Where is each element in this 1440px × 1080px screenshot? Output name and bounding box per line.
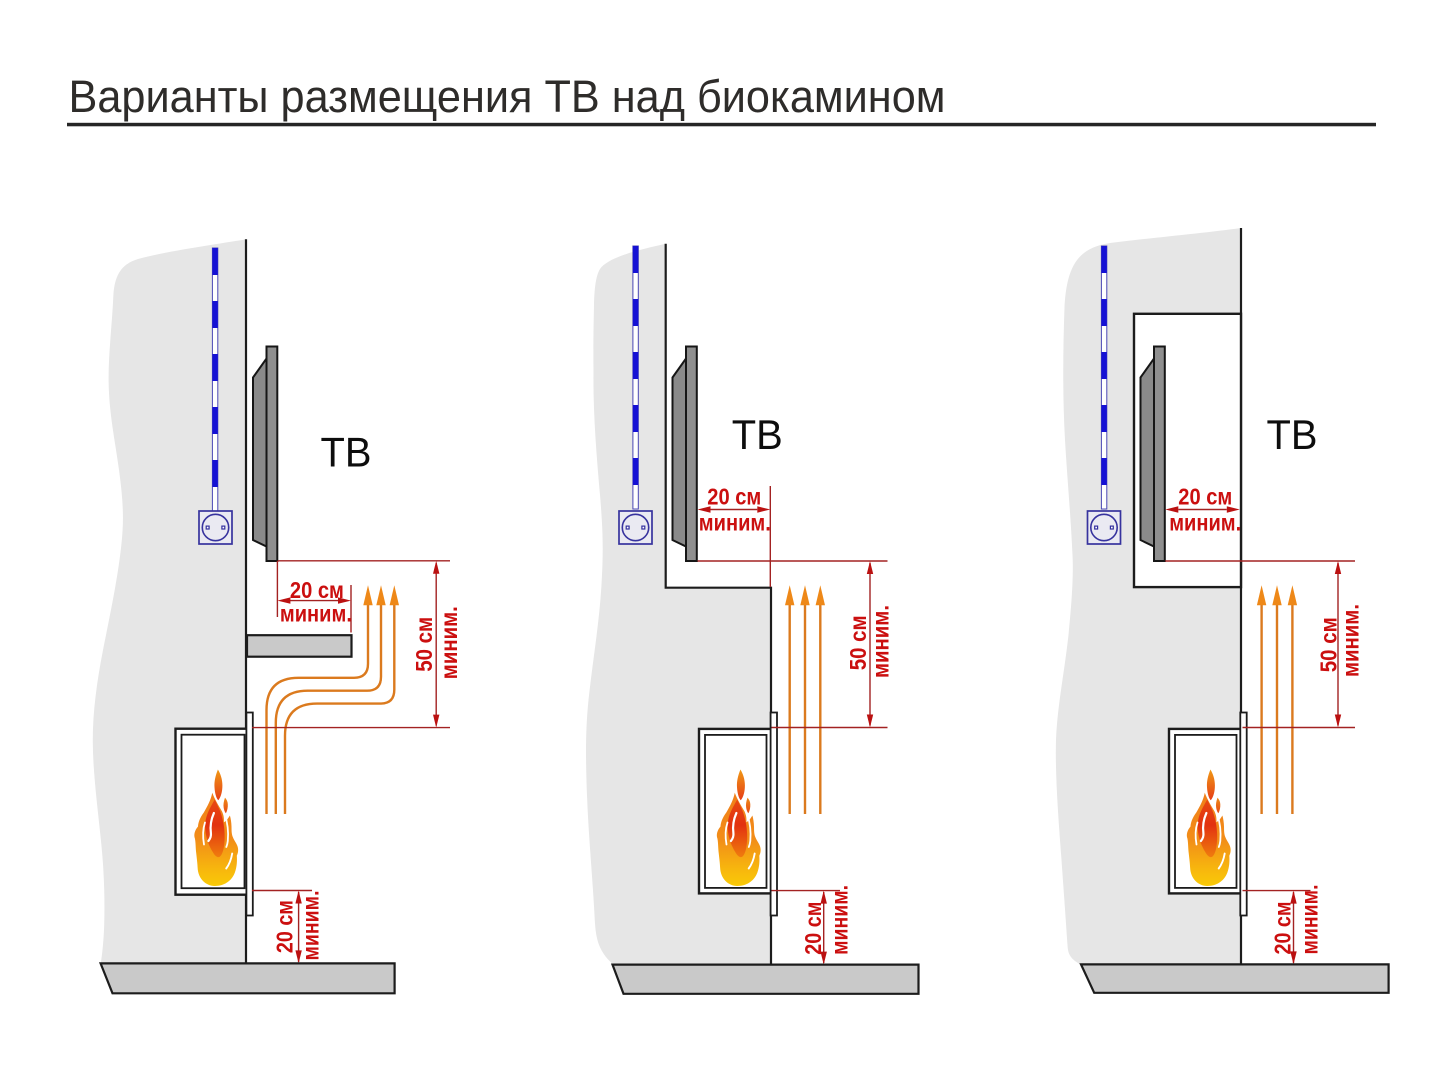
svg-text:миним.: миним.: [1297, 885, 1323, 955]
svg-text:20 см: 20 см: [1270, 902, 1296, 955]
svg-text:20 см: 20 см: [800, 902, 826, 955]
svg-text:Варианты размещения ТВ над био: Варианты размещения ТВ над биокамином: [69, 71, 946, 122]
svg-text:ТВ: ТВ: [732, 411, 783, 458]
svg-text:миним.: миним.: [867, 605, 893, 678]
svg-text:ТВ: ТВ: [1267, 411, 1318, 458]
svg-text:20 см: 20 см: [290, 577, 344, 603]
svg-text:миним.: миним.: [280, 601, 352, 627]
svg-text:50 см: 50 см: [411, 617, 437, 672]
svg-text:миним.: миним.: [436, 606, 462, 679]
svg-text:миним.: миним.: [827, 885, 853, 955]
svg-text:ТВ: ТВ: [321, 428, 372, 475]
svg-text:миним.: миним.: [1169, 510, 1241, 536]
svg-text:миним.: миним.: [699, 510, 771, 536]
svg-text:20 см: 20 см: [707, 484, 761, 510]
svg-text:20 см: 20 см: [1178, 484, 1232, 510]
svg-text:миним.: миним.: [1338, 604, 1364, 677]
svg-text:миним.: миним.: [297, 891, 323, 961]
svg-text:20 см: 20 см: [271, 900, 297, 953]
